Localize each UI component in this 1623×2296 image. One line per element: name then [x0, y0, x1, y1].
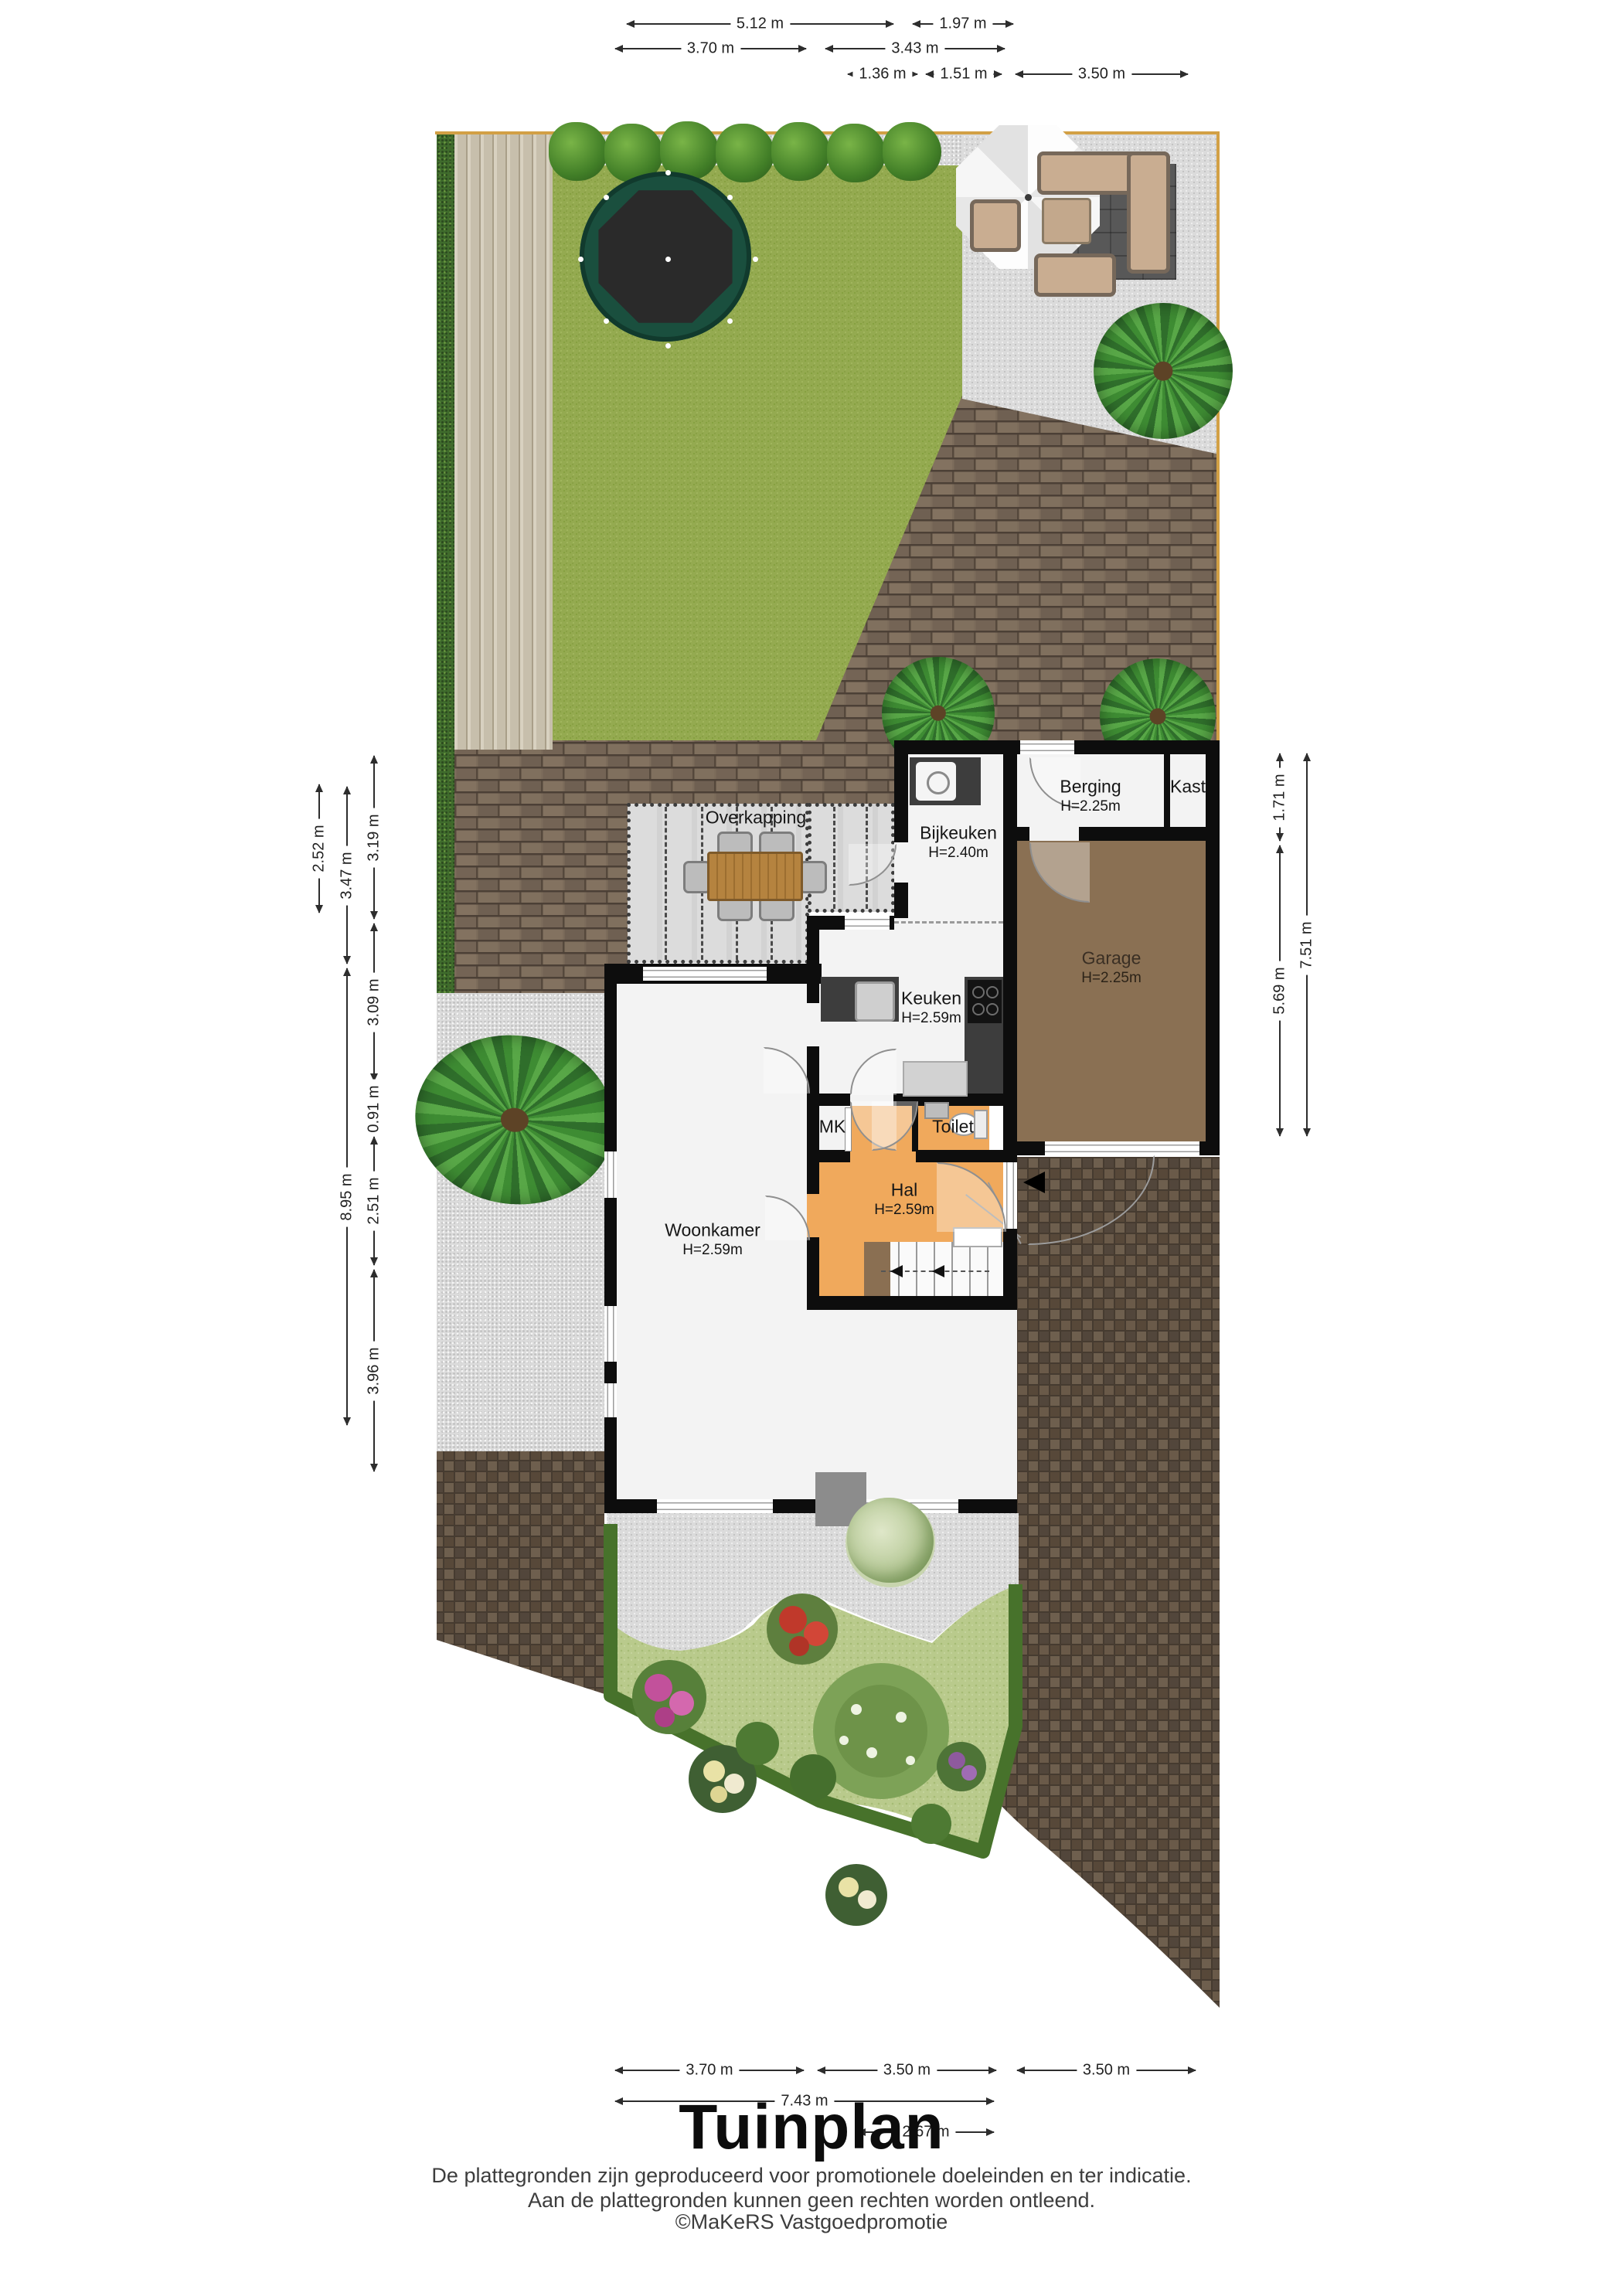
dim-top-3-43: 3.43 m	[825, 48, 1005, 49]
brick-terrace-left	[437, 841, 630, 994]
burner	[986, 1003, 999, 1015]
disclaimer-line-1: De plattegronden zijn geproduceerd voor …	[0, 2164, 1623, 2188]
room-height-berging: H=2.25m	[1060, 798, 1121, 815]
dim-left-2-51: 2.51 m	[373, 1137, 375, 1265]
window-left-1	[604, 1151, 617, 1198]
palm-core	[1153, 362, 1172, 381]
corner-sofa-right	[1127, 151, 1170, 274]
window-left-3	[604, 1383, 617, 1417]
room-label-keuken: Keuken	[901, 988, 961, 1009]
room-label-woonkamer: Woonkamer	[665, 1220, 760, 1241]
garage-floor	[1017, 841, 1206, 1142]
room-height-bijkeuken: H=2.40m	[928, 845, 988, 862]
dim-top-3-50: 3.50 m	[1016, 73, 1188, 75]
page-title: Tuinplan	[0, 2091, 1623, 2164]
dim-top-5-12: 5.12 m	[627, 23, 893, 25]
flowering-shrub-icon	[847, 1498, 934, 1583]
palm-tree-icon	[1094, 303, 1233, 439]
stair-arrow-icon	[932, 1265, 944, 1277]
dim-left-3-47: 3.47 m	[346, 787, 348, 964]
brick-strip-west-of-canopy	[604, 841, 628, 966]
dim-left-3-09: 3.09 m	[373, 924, 375, 1081]
dim-top-1-51: 1.51 m	[926, 73, 1002, 75]
room-label-bijkeuken: Bijkeuken	[920, 823, 997, 844]
entrance-arrow-icon	[1023, 1172, 1045, 1193]
wall-mk-bottom	[807, 1150, 850, 1162]
shrub-icon	[883, 122, 941, 181]
toilet-tank-icon	[974, 1110, 988, 1139]
tuinplan-page: Overkapping Bijkeuken H=2.40m Berging H=…	[0, 0, 1623, 2296]
dim-left-8-95: 8.95 m	[346, 968, 348, 1425]
washer-drum	[927, 771, 950, 794]
wall-keuken-west	[807, 930, 819, 1296]
open-passage-dashed	[894, 921, 1003, 924]
room-label-mk: MK	[819, 1117, 846, 1138]
cooktop-icon	[968, 980, 1002, 1023]
shrub-icon	[716, 124, 774, 182]
dim-top-1-36: 1.36 m	[848, 73, 917, 75]
hedge-left	[437, 134, 454, 993]
room-label-overkapping: Overkapping	[706, 808, 806, 828]
shrub-icon	[549, 122, 607, 181]
room-height-garage: H=2.25m	[1081, 970, 1142, 987]
dim-bottom-3-70: 3.70 m	[615, 2070, 804, 2071]
kitchen-sink-icon	[855, 981, 895, 1022]
dim-right-5-69: 5.69 m	[1279, 845, 1281, 1136]
room-height-keuken: H=2.59m	[901, 1010, 961, 1027]
shrub-icon	[827, 124, 886, 182]
palm-core	[1148, 707, 1168, 726]
wall-right	[1206, 740, 1220, 1155]
room-label-hal: Hal	[891, 1180, 918, 1201]
copyright-line: ©MaKeRS Vastgoedpromotie	[0, 2210, 1623, 2234]
canopy-joint	[665, 807, 667, 960]
shrub-icon	[771, 122, 830, 181]
dining-chair	[799, 861, 827, 893]
bijkeuken-door-gap	[894, 842, 908, 883]
parasol-pole	[1025, 194, 1032, 201]
garage-door	[1045, 1141, 1199, 1155]
palm-core	[928, 703, 948, 723]
stair-arrow-icon	[890, 1265, 903, 1277]
room-label-kast: Kast	[1170, 777, 1206, 798]
dim-left-3-19: 3.19 m	[373, 756, 375, 919]
front-door	[1003, 1161, 1017, 1229]
room-label-garage: Garage	[1082, 948, 1142, 969]
canopy-joint	[833, 807, 835, 909]
trampoline	[580, 172, 751, 342]
dim-bottom-3-50b: 3.50 m	[1017, 2070, 1196, 2071]
kitchen-cabinet	[903, 1061, 968, 1097]
burner	[986, 986, 999, 998]
dim-left-3-96: 3.96 m	[373, 1270, 375, 1471]
dark-brick-left	[437, 1451, 604, 1694]
wood-deck	[454, 134, 553, 750]
trampoline-mat	[598, 190, 732, 323]
dim-top-1-97: 1.97 m	[913, 23, 1013, 25]
burner	[972, 986, 985, 998]
terrace-slider-door	[643, 967, 767, 981]
disclaimer-line-2: Aan de plattegronden kunnen geen rechten…	[0, 2189, 1623, 2213]
staircase-landing-strip	[864, 1242, 890, 1298]
room-height-hal: H=2.59m	[874, 1202, 934, 1219]
backdoor-window	[1020, 740, 1074, 754]
wall-left	[604, 964, 617, 1513]
lounge-armchair	[970, 199, 1021, 252]
room-label-berging: Berging	[1060, 777, 1121, 798]
dim-left-0-91: 0.91 m	[373, 1086, 375, 1132]
trampoline-feet	[665, 257, 671, 262]
wall-kast-divider	[1164, 754, 1170, 828]
driveway	[986, 1157, 1220, 2008]
dim-left-2-52: 2.52 m	[318, 784, 320, 913]
burner	[972, 1003, 985, 1015]
keuken-woonkamer-door-gap	[807, 1003, 819, 1046]
dim-right-7-51: 7.51 m	[1306, 753, 1308, 1136]
window-left-2	[604, 1306, 617, 1362]
dim-bottom-3-50a: 3.50 m	[818, 2070, 996, 2071]
window-bottom-1	[657, 1499, 773, 1513]
berging-door-gap	[1029, 827, 1079, 841]
room-height-woonkamer: H=2.59m	[682, 1242, 743, 1259]
wall-hal-bottom	[807, 1296, 1017, 1310]
lounge-loveseat	[1034, 253, 1116, 297]
wall-bijkeuken-left	[894, 740, 908, 918]
wall-toilet-bottom	[916, 1150, 1017, 1162]
dining-table	[707, 852, 803, 901]
keuken-window-north	[845, 916, 890, 930]
palm-core	[499, 1106, 530, 1133]
room-label-toilet: Toilet	[932, 1117, 974, 1138]
dim-right-1-71: 1.71 m	[1279, 753, 1281, 841]
lounge-table	[1042, 198, 1091, 244]
washing-machine-icon	[916, 762, 956, 801]
dim-top-3-70: 3.70 m	[615, 48, 806, 49]
hal-floor-low	[819, 1239, 864, 1298]
